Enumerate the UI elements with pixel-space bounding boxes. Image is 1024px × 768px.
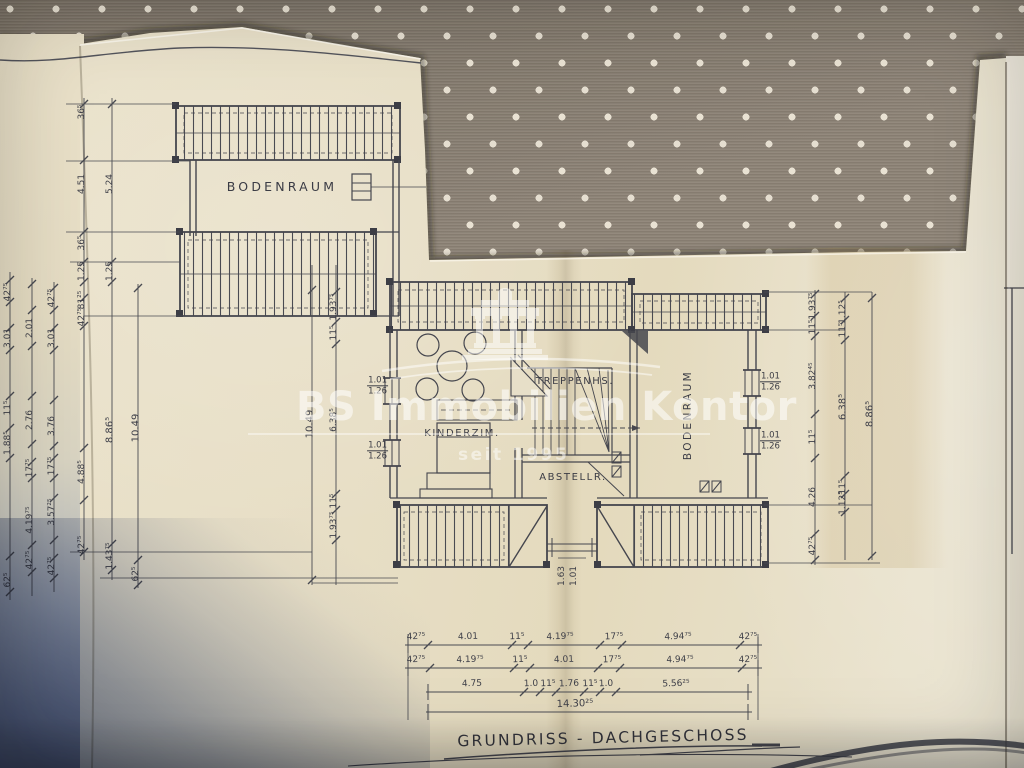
- watermark-since: seit 1995: [458, 445, 569, 465]
- watermark-swoosh: [382, 359, 660, 379]
- watermark-underline: [248, 433, 710, 435]
- watermark-brand: BS Immobilien Kontor: [296, 384, 797, 430]
- floor-plan-photo: BODENRAUM KINDERZIM. TREPPENHS. ABSTELLR…: [0, 0, 1024, 768]
- temple-logo-icon: [462, 288, 548, 360]
